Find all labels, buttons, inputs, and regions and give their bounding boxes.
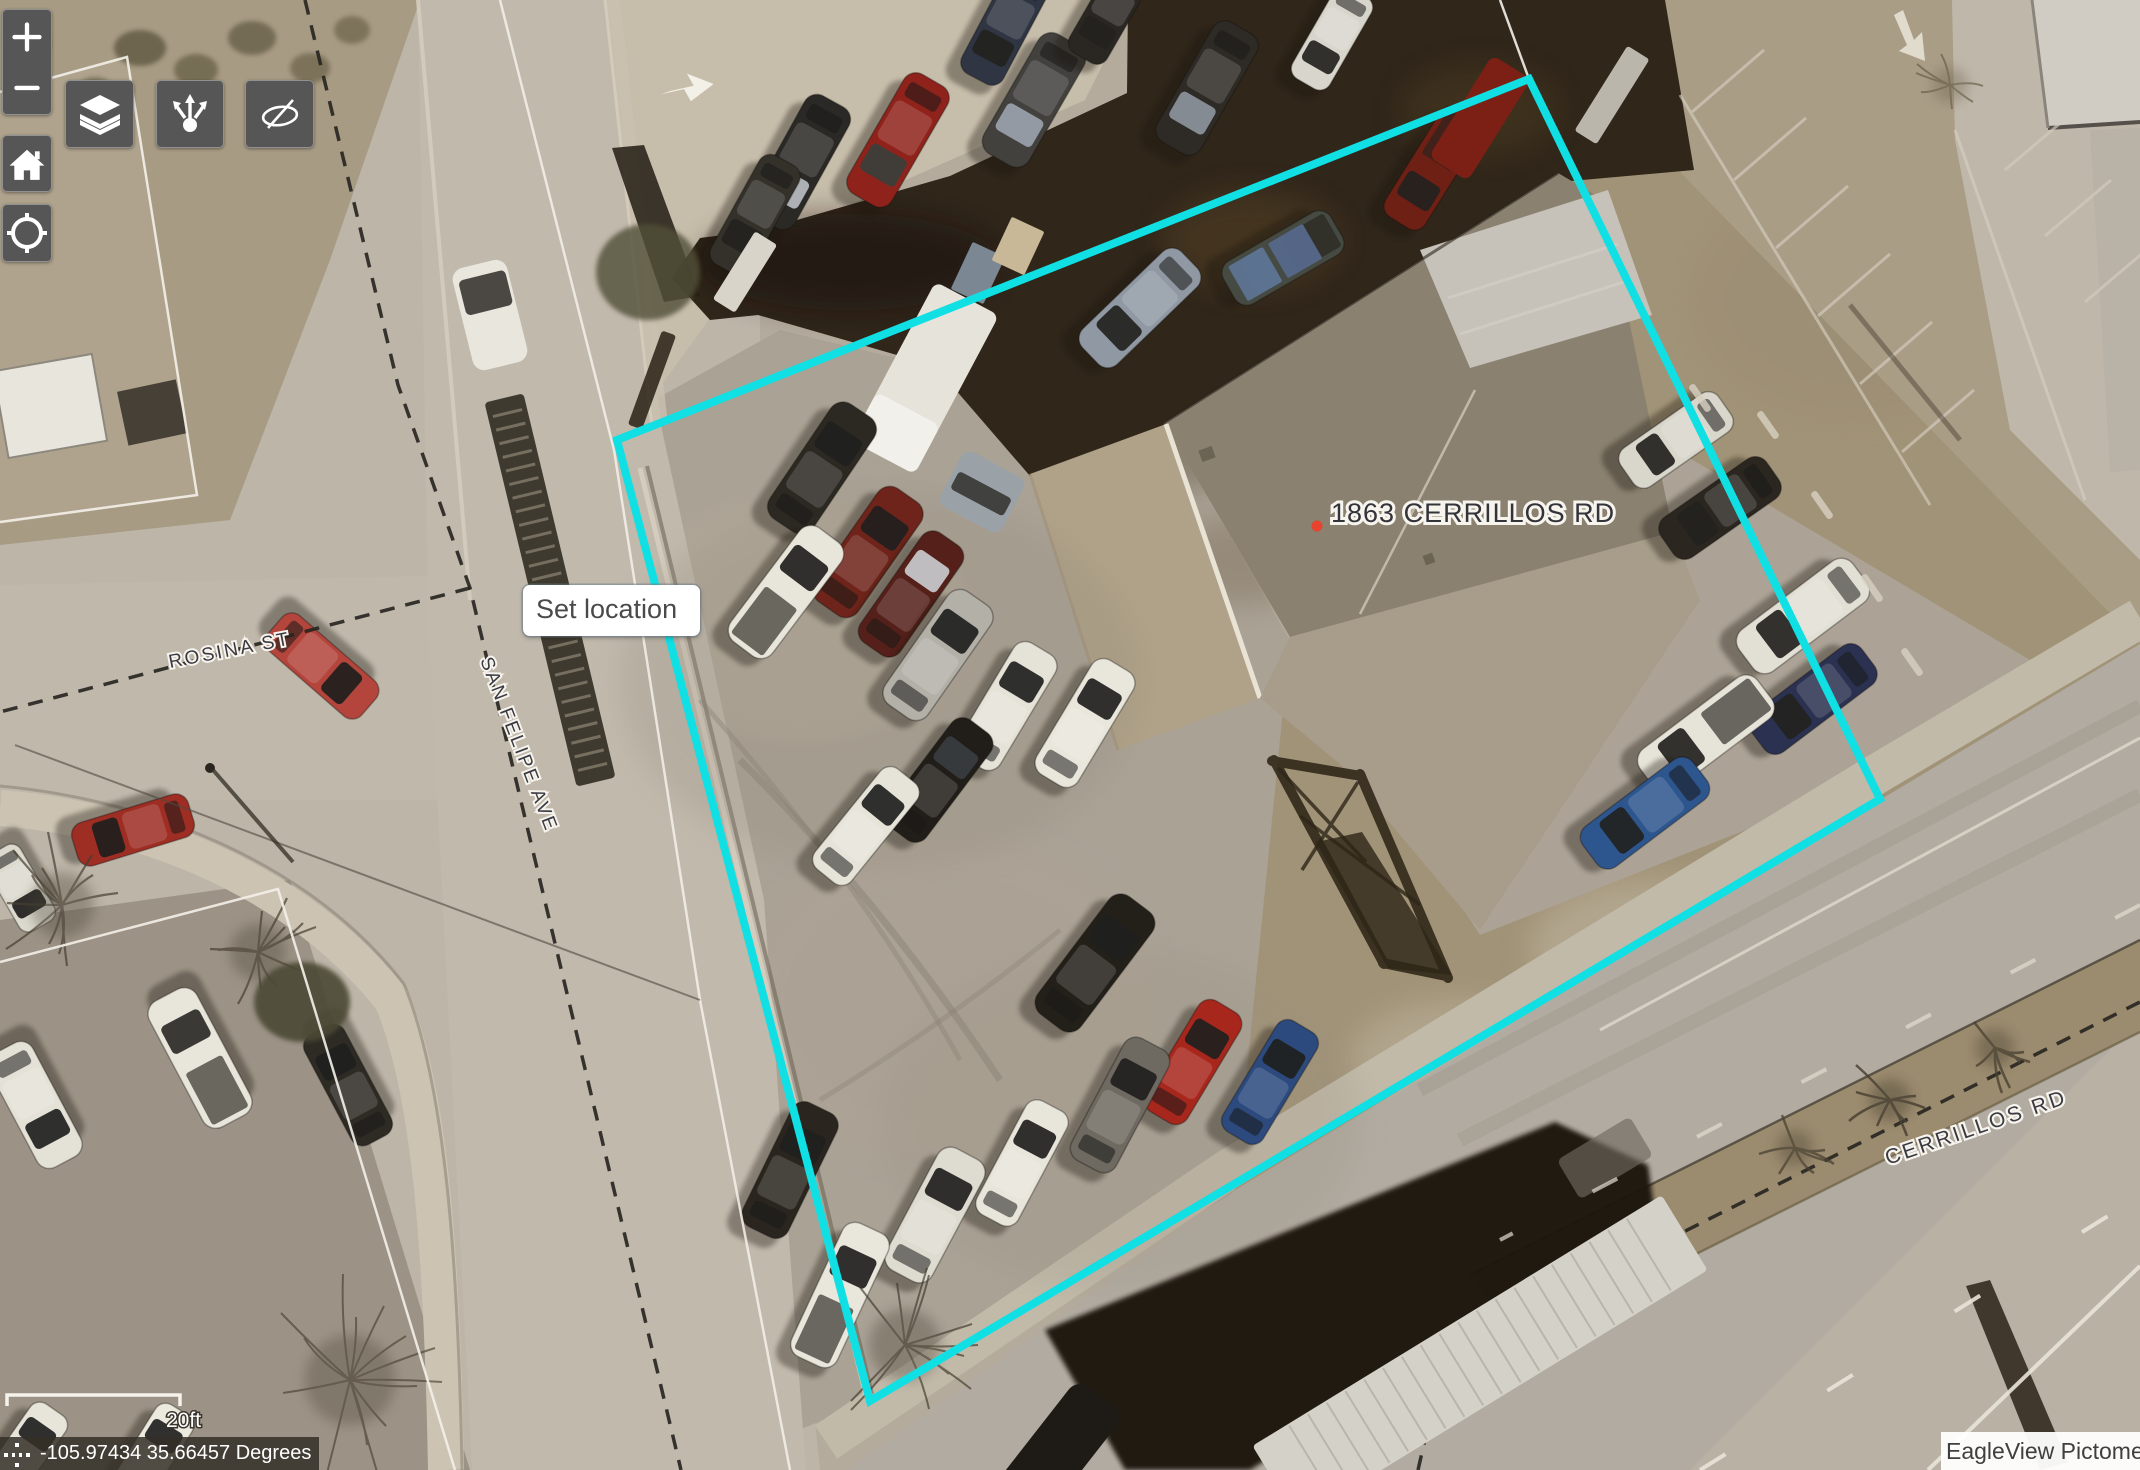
svg-text:1863 CERRILLOS RD: 1863 CERRILLOS RD: [1331, 498, 1615, 528]
svg-text:20ft: 20ft: [166, 1409, 201, 1432]
